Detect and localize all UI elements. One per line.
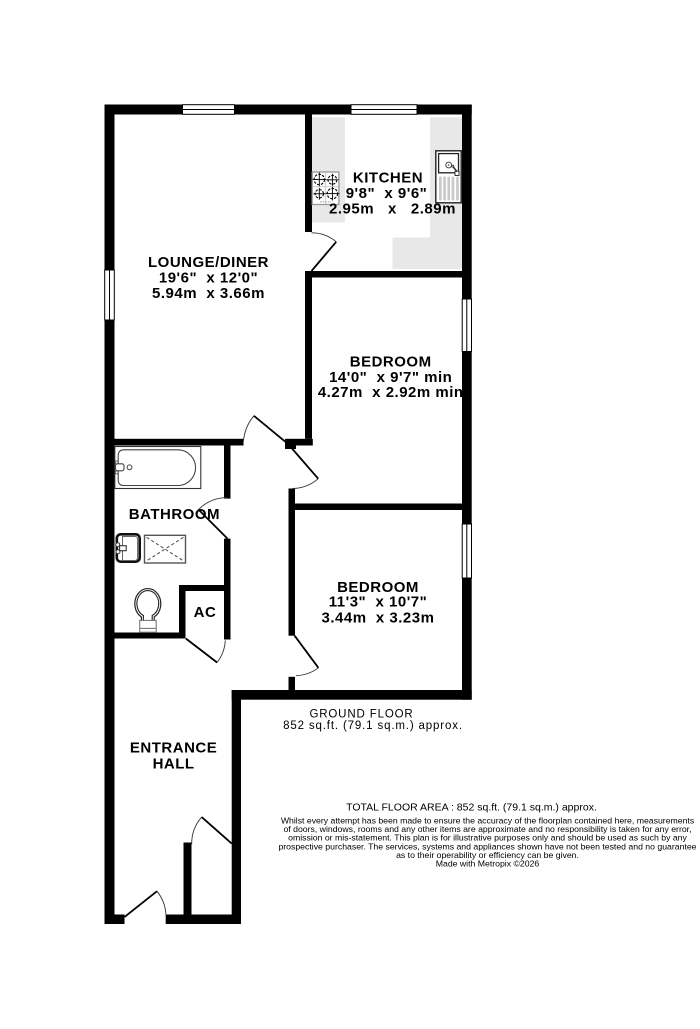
- svg-text:19'6" x 12'0": 19'6" x 12'0": [159, 269, 258, 286]
- svg-text:BEDROOM: BEDROOM: [350, 354, 432, 371]
- svg-text:ENTRANCE: ENTRANCE: [130, 740, 217, 757]
- svg-text:HALL: HALL: [153, 755, 195, 772]
- svg-text:AC: AC: [194, 604, 217, 621]
- svg-text:GROUND FLOOR: GROUND FLOOR: [309, 708, 413, 720]
- svg-text:3.44m x 3.23m: 3.44m x 3.23m: [322, 609, 435, 626]
- svg-text:11'3" x 10'7": 11'3" x 10'7": [329, 594, 427, 611]
- svg-text:BATHROOM: BATHROOM: [129, 506, 220, 523]
- svg-text:KITCHEN: KITCHEN: [353, 170, 423, 187]
- svg-text:4.27m x 2.92m min: 4.27m x 2.92m min: [318, 384, 464, 401]
- svg-text:Made with Metropix ©2026: Made with Metropix ©2026: [436, 858, 540, 868]
- svg-text:852 sq.ft. (79.1 sq.m.) approx: 852 sq.ft. (79.1 sq.m.) approx.: [283, 720, 463, 732]
- svg-text:2.95m x 2.89m: 2.95m x 2.89m: [329, 201, 456, 218]
- svg-text:5.94m x 3.66m: 5.94m x 3.66m: [152, 285, 265, 302]
- svg-text:TOTAL FLOOR AREA : 852 sq.ft.: TOTAL FLOOR AREA : 852 sq.ft. (79.1 sq.m…: [346, 801, 597, 813]
- svg-text:9'8" x 9'6": 9'8" x 9'6": [346, 185, 428, 202]
